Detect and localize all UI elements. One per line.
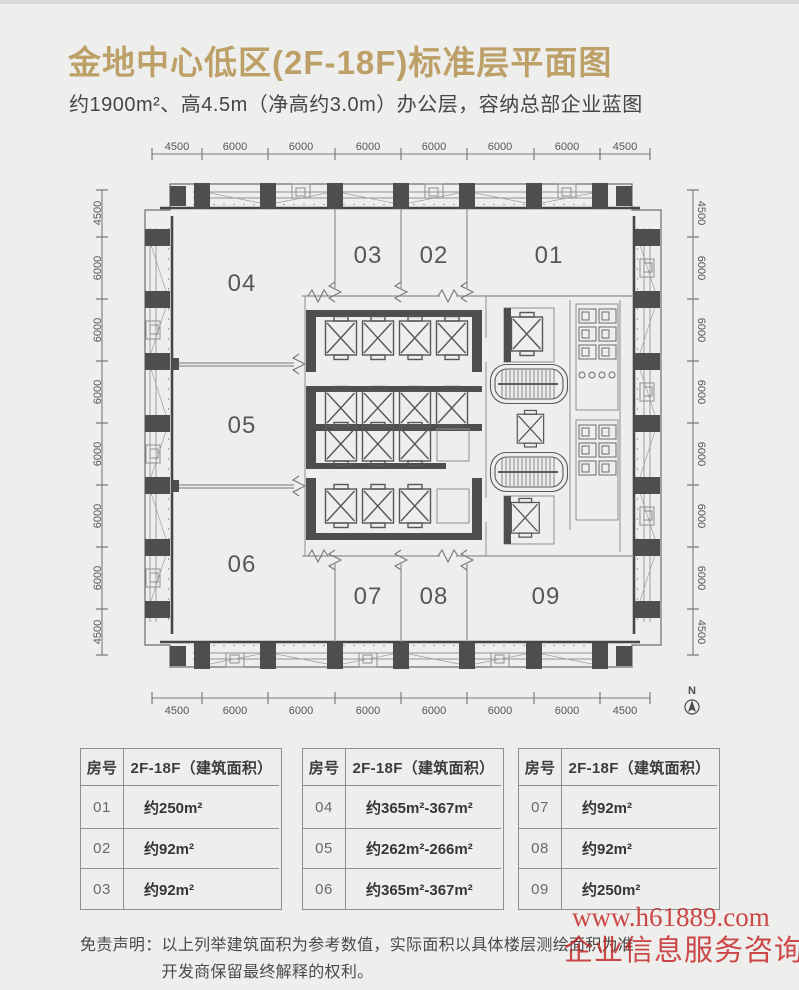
north-label: N xyxy=(688,685,696,697)
dim-label: 6000 xyxy=(695,566,707,590)
room-label-03: 03 xyxy=(354,242,383,269)
dim-label: 6000 xyxy=(555,705,579,717)
page-title: 金地中心低区(2F-18F)标准层平面图 xyxy=(68,36,612,84)
dim-label: 6000 xyxy=(695,504,707,528)
dim-label: 6000 xyxy=(223,705,247,717)
room-label-08: 08 xyxy=(420,583,449,610)
dim-label: 6000 xyxy=(92,256,104,280)
area-table-1: 房号 2F-18F（建筑面积） 01 约250m² 02 约92m² 03 约9… xyxy=(80,748,282,910)
dim-label: 4500 xyxy=(613,705,637,717)
table-cell-room: 06 xyxy=(303,869,346,909)
table-cell-room: 02 xyxy=(81,829,124,869)
room-label-04: 04 xyxy=(228,270,257,297)
table-header-room: 房号 xyxy=(519,749,562,786)
table-cell-area: 约92m² xyxy=(562,786,717,829)
dim-label: 6000 xyxy=(92,380,104,404)
table-cell-room: 05 xyxy=(303,829,346,869)
table-cell-area: 约365m²-367m² xyxy=(346,869,501,909)
table-header-area: 2F-18F（建筑面积） xyxy=(346,749,501,786)
table-cell-area: 约92m² xyxy=(562,829,717,869)
table-cell-room: 03 xyxy=(81,869,124,909)
page: 金地中心低区(2F-18F)标准层平面图 约1900m²、高4.5m（净高约3.… xyxy=(0,0,799,990)
table-cell-area: 约250m² xyxy=(124,786,279,829)
area-table-2: 房号 2F-18F（建筑面积） 04 约365m²-367m² 05 约262m… xyxy=(302,748,504,910)
room-label-01: 01 xyxy=(535,242,564,269)
floor-plan-drawing: 4500 6000 6000 6000 6000 6000 6000 4500 … xyxy=(70,128,730,728)
stairwell-top xyxy=(491,365,568,404)
restrooms xyxy=(576,304,618,520)
table-cell-area: 约92m² xyxy=(124,829,279,869)
dim-label: 6000 xyxy=(223,141,247,153)
room-label-05: 05 xyxy=(228,412,257,439)
table-header-area: 2F-18F（建筑面积） xyxy=(562,749,717,786)
dim-label: 6000 xyxy=(422,705,446,717)
dim-label: 4500 xyxy=(92,201,104,225)
dim-label: 6000 xyxy=(92,504,104,528)
stairwell-bottom xyxy=(491,453,568,492)
dim-label: 4500 xyxy=(613,141,637,153)
dim-label: 6000 xyxy=(92,566,104,590)
table-cell-room: 09 xyxy=(519,869,562,909)
fire-elevator-bottom xyxy=(504,496,554,544)
table-cell-room: 07 xyxy=(519,786,562,829)
dimension-chain-top: 4500 6000 6000 6000 6000 6000 6000 4500 xyxy=(152,141,650,160)
room-label-07: 07 xyxy=(354,583,383,610)
room-label-06: 06 xyxy=(228,551,257,578)
dim-label: 4500 xyxy=(165,705,189,717)
dim-label: 6000 xyxy=(422,141,446,153)
dimension-chain-right: 4500 6000 6000 6000 6000 6000 6000 4500 xyxy=(687,190,707,655)
dim-label: 6000 xyxy=(695,442,707,466)
north-arrow-icon: N xyxy=(685,685,699,714)
room-label-02: 02 xyxy=(420,242,449,269)
top-border-strip xyxy=(0,0,799,4)
table-cell-area: 约365m²-367m² xyxy=(346,786,501,829)
dim-label: 6000 xyxy=(289,705,313,717)
dim-label: 6000 xyxy=(289,141,313,153)
elevator-core xyxy=(305,296,620,556)
watermark-caption: 企业信息服务咨询 xyxy=(564,927,799,969)
dim-label: 6000 xyxy=(695,380,707,404)
table-cell-room: 01 xyxy=(81,786,124,829)
dim-label: 6000 xyxy=(356,141,380,153)
table-header-room: 房号 xyxy=(81,749,124,786)
disclaimer: 免责声明： 以上列举建筑面积为参考数值，实际面积以具体楼层测绘面积为准 开发商保… xyxy=(80,932,634,986)
dim-label: 6000 xyxy=(488,705,512,717)
table-header-room: 房号 xyxy=(303,749,346,786)
dim-label: 4500 xyxy=(695,201,707,225)
dimension-chain-left: 4500 6000 6000 6000 6000 6000 6000 4500 xyxy=(92,190,108,655)
dim-label: 4500 xyxy=(92,620,104,644)
area-table-3: 房号 2F-18F（建筑面积） 07 约92m² 08 约92m² 09 约25… xyxy=(518,748,720,910)
page-subtitle: 约1900m²、高4.5m（净高约3.0m）办公层，容纳总部企业蓝图 xyxy=(69,88,643,117)
dim-label: 4500 xyxy=(695,620,707,644)
dim-label: 6000 xyxy=(695,256,707,280)
table-cell-room: 04 xyxy=(303,786,346,829)
dim-label: 6000 xyxy=(92,318,104,342)
disclaimer-label: 免责声明： xyxy=(80,932,162,986)
dim-label: 6000 xyxy=(92,442,104,466)
dim-label: 6000 xyxy=(555,141,579,153)
table-cell-room: 08 xyxy=(519,829,562,869)
table-cell-area: 约262m²-266m² xyxy=(346,829,501,869)
dim-label: 6000 xyxy=(488,141,512,153)
dim-label: 6000 xyxy=(356,705,380,717)
table-header-area: 2F-18F（建筑面积） xyxy=(124,749,279,786)
dimension-chain-bottom: 4500 6000 6000 6000 6000 6000 6000 4500 xyxy=(152,692,650,717)
table-cell-area: 约92m² xyxy=(124,869,279,909)
room-label-09: 09 xyxy=(532,583,561,610)
fire-elevator-top xyxy=(504,308,554,362)
fire-elevator-middle xyxy=(517,410,543,447)
dim-label: 6000 xyxy=(695,318,707,342)
dim-label: 4500 xyxy=(165,141,189,153)
